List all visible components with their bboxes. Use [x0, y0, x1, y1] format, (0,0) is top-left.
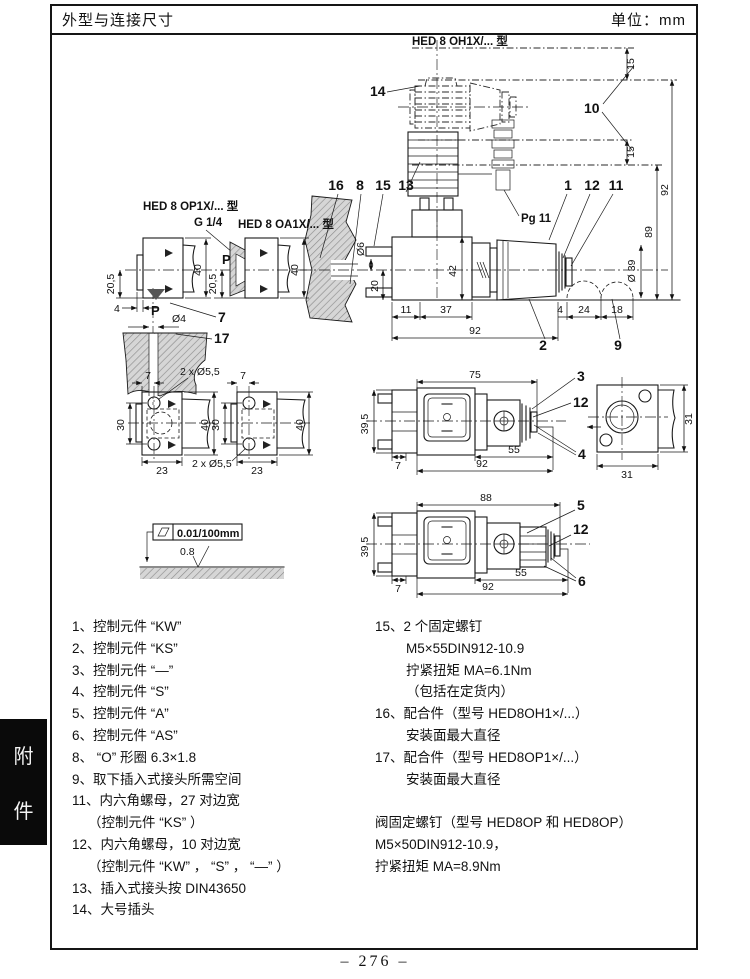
drawing-flatness-symbol: 0.01/100mm 0.8: [140, 524, 284, 579]
callout-10: 10: [584, 100, 600, 116]
callout-12b: 12: [573, 394, 589, 410]
dim-40-b: 40: [294, 419, 306, 431]
note-line: 11、内六角螺母，27 对边宽: [72, 790, 372, 812]
dim-42: 42: [447, 265, 459, 277]
dim-205-op: 20,5: [105, 274, 117, 295]
dim-dia6: Ø6: [355, 242, 367, 256]
callout-4: 4: [578, 446, 586, 462]
roughness-value: 0.8: [180, 546, 195, 558]
dim-24: 24: [578, 304, 590, 316]
pg11-label: Pg 11: [521, 213, 552, 225]
dim-7-v2: 7: [395, 583, 401, 595]
dim-30-b: 30: [210, 419, 222, 431]
note-line: 安装面最大直径: [375, 725, 691, 747]
callout-16: 16: [328, 177, 344, 193]
drawing-side-view-88: 39,5: [359, 492, 590, 598]
callout-14: 14: [370, 83, 386, 99]
dim-92-v1: 92: [476, 458, 488, 470]
dim-31-h: 31: [621, 469, 633, 481]
model-label-oa: HED 8 OA1X/... 型: [238, 217, 334, 231]
drawing-side-view-75: 39,5 75: [359, 368, 589, 475]
dim-205-oa: 20,5: [207, 274, 219, 295]
unit-label: 单位：mm: [611, 9, 686, 30]
drawing-main-view: Pg 11 Ø6 20 42: [300, 120, 680, 353]
dim-4b: 4: [557, 304, 563, 316]
callout-5: 5: [577, 497, 585, 513]
dim-92-v2: 92: [482, 581, 494, 593]
sidebar-tab-attachment: 附 件: [0, 719, 47, 845]
dim-55-1: 55: [508, 444, 520, 456]
port-p-label-oa: P: [222, 252, 231, 267]
note-line: （包括在定货内）: [375, 681, 691, 703]
dim-395-2: 39,5: [359, 537, 371, 558]
note-line: 阀固定螺钉（型号 HED8OP 和 HED8OP）: [375, 812, 691, 834]
callout-6: 6: [578, 573, 586, 589]
note-line: 安装面最大直径: [375, 769, 691, 791]
dim-92-main: 92: [469, 325, 481, 337]
dim-30-a: 30: [115, 419, 127, 431]
dim-89: 89: [643, 226, 655, 238]
sidebar-tab-char: 附: [14, 740, 34, 769]
note-line: [375, 790, 691, 812]
callout-2: 2: [539, 337, 547, 353]
note-line: 15、2 个固定螺钉: [375, 616, 691, 638]
note-line: M5×55DIN912-10.9: [375, 638, 691, 660]
dims-top-right: 15 15 92 89 Ø 39: [625, 48, 672, 300]
page-number: – 276 –: [0, 953, 750, 971]
note-line: 4、控制元件 “S”: [72, 681, 372, 703]
dim-23-b: 23: [251, 465, 263, 477]
catalog-page: 外型与连接尺寸 单位：mm: [0, 0, 750, 979]
callout-9: 9: [614, 337, 622, 353]
dim-7-b: 7: [240, 370, 246, 382]
dim-18: 18: [611, 304, 623, 316]
callout-1: 1: [564, 177, 572, 193]
dim-88: 88: [480, 492, 492, 504]
note-line: 5、控制元件 “A”: [72, 703, 372, 725]
page-header: 外型与连接尺寸 单位：mm: [52, 6, 696, 35]
dim-7-v1: 7: [395, 460, 401, 472]
dimension-drawing: HED 8 OH1X/... 型 14 10 15 15 92 89 Ø 39: [52, 35, 696, 620]
dim-23-a: 23: [156, 465, 168, 477]
callout-15: 15: [375, 177, 391, 193]
note-line: 3、控制元件 “—”: [72, 660, 372, 682]
flatness-value: 0.01/100mm: [177, 528, 240, 540]
callout-17: 17: [214, 330, 230, 346]
note-line: 1、控制元件 “KW”: [72, 616, 372, 638]
dim-40-op: 40: [192, 264, 204, 276]
notes-column-right: 15、2 个固定螺钉M5×55DIN912-10.9拧紧扭矩 MA=6.1Nm（…: [375, 616, 691, 878]
dim-40-oa: 40: [289, 264, 301, 276]
dim-395-1: 39,5: [359, 414, 371, 435]
dim-7-a: 7: [145, 370, 151, 382]
dim-2x55-b: 2 x Ø5,5: [192, 458, 232, 470]
note-line: 拧紧扭矩 MA=8.9Nm: [375, 856, 691, 878]
note-line: 9、取下插入式接头所需空间: [72, 769, 372, 791]
dim-37: 37: [440, 304, 452, 316]
note-line: 2、控制元件 “KS”: [72, 638, 372, 660]
page-frame: 外型与连接尺寸 单位：mm: [50, 4, 698, 950]
note-line: 12、内六角螺母，10 对边宽: [72, 834, 372, 856]
callout-7: 7: [218, 309, 226, 325]
dim-20: 20: [369, 280, 381, 292]
dim-15-top: 15: [625, 58, 637, 70]
callout-12c: 12: [573, 521, 589, 537]
note-line: 16、配合件（型号 HED8OH1×/...）: [375, 703, 691, 725]
model-label-oh: HED 8 OH1X/... 型: [412, 35, 508, 48]
callout-12: 12: [584, 177, 600, 193]
dim-15-mid: 15: [625, 146, 637, 158]
note-line: （控制元件 “KW” ， “S” ， “—” ）: [72, 856, 372, 878]
page-title: 外型与连接尺寸: [62, 9, 174, 30]
dim-dia4: Ø4: [172, 313, 186, 325]
note-line: （控制元件 “KS” ）: [72, 812, 372, 834]
port-p-label-op: P: [151, 303, 160, 318]
dim-75: 75: [469, 369, 481, 381]
dim-dia39: Ø 39: [626, 259, 638, 282]
dim-2x55-a: 2 x Ø5,5: [180, 366, 220, 378]
note-line: 8、 “O” 形圈 6.3×1.8: [72, 747, 372, 769]
callout-8: 8: [356, 177, 364, 193]
model-label-op: HED 8 OP1X/... 型: [143, 199, 239, 213]
note-line: 拧紧扭矩 MA=6.1Nm: [375, 660, 691, 682]
pg11-gland: [458, 120, 514, 190]
callout-3: 3: [577, 368, 585, 384]
g14-label: G 1/4: [194, 217, 223, 229]
note-line: 13、插入式接头按 DIN43650: [72, 878, 372, 900]
sidebar-tab-char: 件: [14, 795, 34, 824]
notes-column-left: 1、控制元件 “KW”2、控制元件 “KS”3、控制元件 “—”4、控制元件 “…: [72, 616, 372, 921]
drawing-mounting-plate: 31 31: [587, 377, 695, 481]
dim-11: 11: [401, 304, 412, 316]
dim-4-op: 4: [114, 303, 120, 315]
note-line: 17、配合件（型号 HED8OP1×/...）: [375, 747, 691, 769]
dim-55-2: 55: [515, 567, 527, 579]
callout-11: 11: [609, 177, 624, 193]
dim-92-right: 92: [659, 184, 671, 196]
note-line: 14、大号插头: [72, 899, 372, 921]
note-line: 6、控制元件 “AS”: [72, 725, 372, 747]
note-line: M5×50DIN912-10.9，: [375, 834, 691, 856]
dim-31-v: 31: [683, 413, 695, 425]
